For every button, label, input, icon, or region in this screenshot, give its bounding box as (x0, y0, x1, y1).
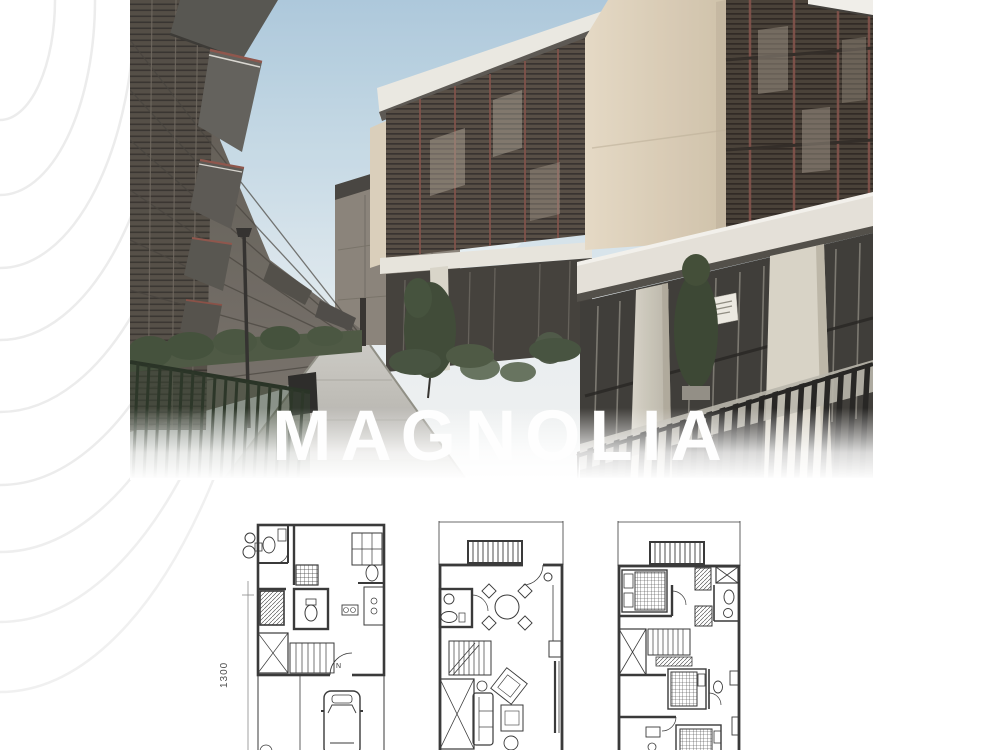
floor-plan-third (616, 521, 742, 750)
dimension-label: 1300 (219, 626, 230, 688)
north-label: N (336, 663, 341, 670)
brochure-page: MAGNOLIA 1300 (0, 0, 1000, 750)
floor-plan-ground: N (236, 521, 388, 750)
project-title: MAGNOLIA (130, 401, 873, 472)
floor-plan-second (435, 521, 567, 750)
